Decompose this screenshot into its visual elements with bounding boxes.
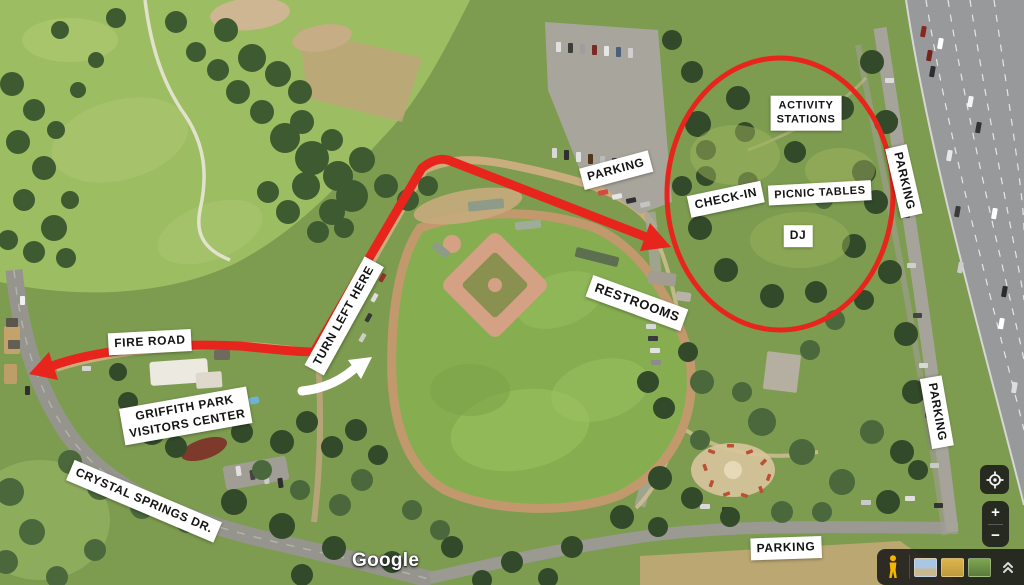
google-logo[interactable]: Google — [352, 550, 419, 572]
label-dj: DJ — [784, 225, 813, 247]
imagery-thumbnail-2[interactable] — [941, 558, 964, 577]
imagery-thumbnail-3[interactable] — [968, 558, 991, 577]
label-fire-road: FIRE ROAD — [108, 329, 192, 355]
zoom-in-button[interactable]: + — [982, 501, 1009, 524]
zoom-out-button[interactable]: − — [982, 525, 1009, 548]
map-canvas[interactable]: FIRE ROAD TURN LEFT HERE GRIFFITH PARK V… — [0, 0, 1024, 585]
collapse-bar-button[interactable] — [998, 555, 1018, 579]
imagery-thumbnail-1[interactable] — [914, 558, 937, 577]
zoom-control: + − — [982, 501, 1009, 547]
my-location-button[interactable] — [980, 465, 1009, 494]
pegman-icon — [887, 555, 899, 579]
bar-divider — [909, 555, 910, 579]
chevrons-up-icon — [1001, 559, 1015, 575]
imagery-control-bar — [877, 549, 1024, 585]
pegman-button[interactable] — [881, 553, 905, 581]
label-activity-stations: ACTIVITY STATIONS — [771, 96, 842, 131]
label-parking-south: PARKING — [750, 536, 821, 560]
my-location-icon — [986, 471, 1004, 489]
